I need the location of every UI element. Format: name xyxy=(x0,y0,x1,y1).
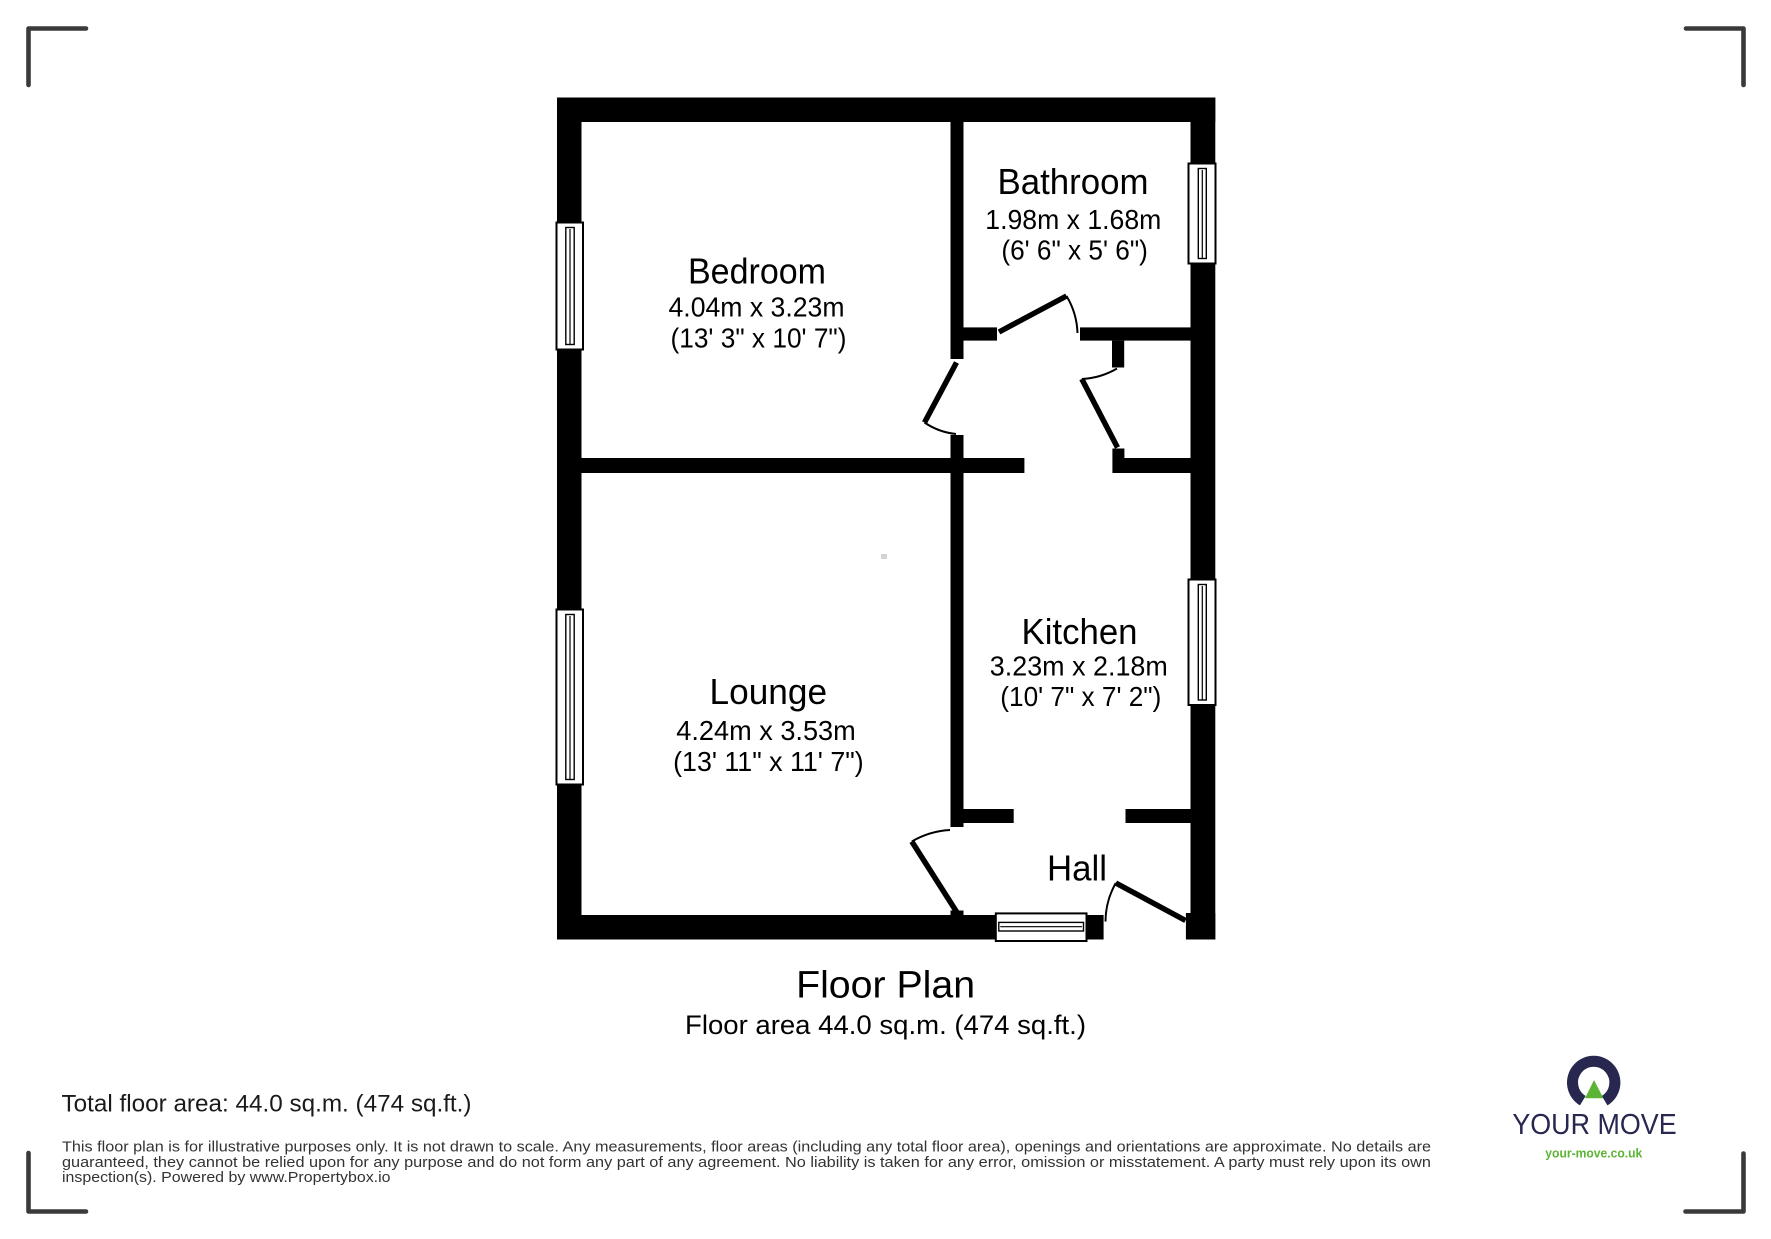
svg-text:4.04m x 3.23m: 4.04m x 3.23m xyxy=(669,292,845,323)
svg-text:(6' 6" x 5' 6"): (6' 6" x 5' 6") xyxy=(1001,235,1148,266)
svg-text:(13' 3" x 10' 7"): (13' 3" x 10' 7") xyxy=(671,323,847,354)
svg-text:your-move.co.uk: your-move.co.uk xyxy=(1545,1146,1643,1161)
svg-text:Bedroom: Bedroom xyxy=(688,250,826,291)
svg-text:Kitchen: Kitchen xyxy=(1022,611,1138,652)
svg-text:Lounge: Lounge xyxy=(710,671,828,712)
svg-text:(10' 7" x 7' 2"): (10' 7" x 7' 2") xyxy=(1000,681,1161,712)
svg-text:Floor Plan: Floor Plan xyxy=(796,964,975,1006)
svg-text:Floor area 44.0 sq.m. (474 sq.: Floor area 44.0 sq.m. (474 sq.ft.) xyxy=(685,1010,1086,1040)
svg-text:Bathroom: Bathroom xyxy=(998,161,1149,202)
svg-text:3.23m x 2.18m: 3.23m x 2.18m xyxy=(990,651,1168,682)
svg-text:inspection(s). Powered by www.: inspection(s). Powered by www.Propertybo… xyxy=(62,1169,391,1186)
svg-text:4.24m x 3.53m: 4.24m x 3.53m xyxy=(676,715,856,746)
svg-text:YOUR MOVE: YOUR MOVE xyxy=(1512,1109,1676,1141)
svg-text:Hall: Hall xyxy=(1047,848,1107,889)
svg-text:1.98m x 1.68m: 1.98m x 1.68m xyxy=(985,204,1161,235)
svg-text:(13' 11" x 11' 7"): (13' 11" x 11' 7") xyxy=(673,746,864,777)
svg-text:Total floor area: 44.0 sq.m. (: Total floor area: 44.0 sq.m. (474 sq.ft.… xyxy=(62,1091,472,1118)
